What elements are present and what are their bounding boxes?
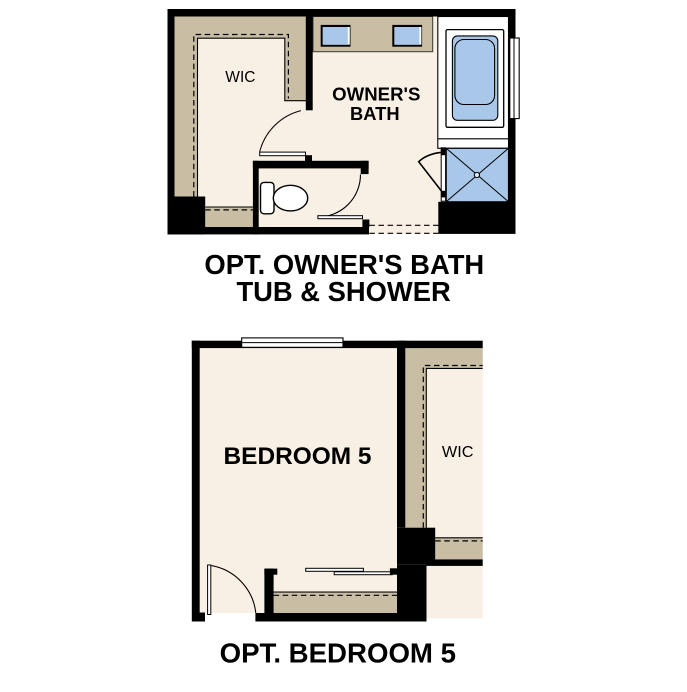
svg-text:WIC: WIC (225, 69, 255, 86)
svg-text:OPT. BEDROOM 5: OPT. BEDROOM 5 (220, 638, 456, 669)
svg-text:TUB & SHOWER: TUB & SHOWER (236, 276, 450, 307)
svg-text:OWNER'S: OWNER'S (332, 85, 420, 105)
svg-text:WIC: WIC (442, 444, 474, 461)
svg-text:BATH: BATH (350, 104, 400, 124)
svg-text:BEDROOM 5: BEDROOM 5 (224, 443, 372, 470)
